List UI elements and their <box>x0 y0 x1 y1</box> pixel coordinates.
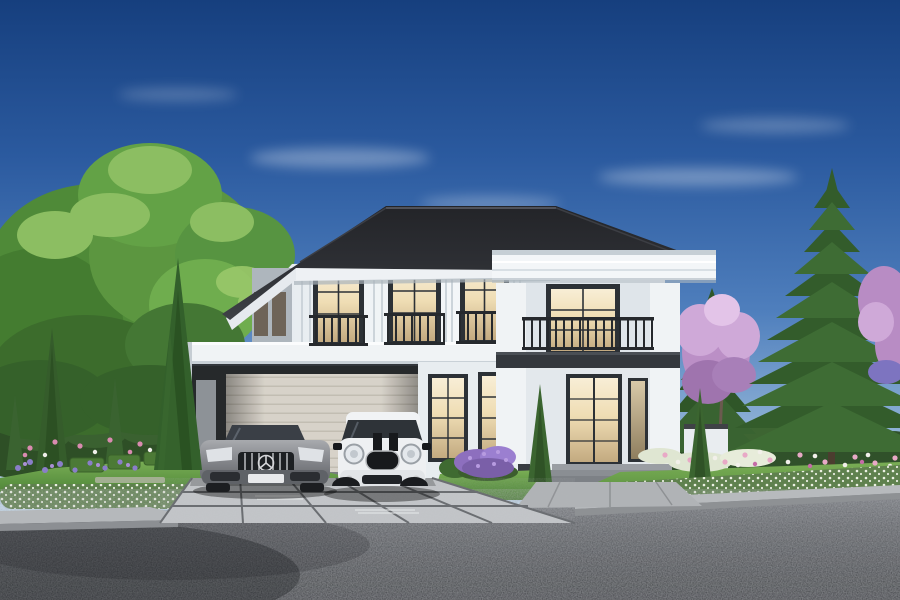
side-light-window <box>628 378 648 462</box>
side-mirror <box>333 443 342 450</box>
side-window <box>272 292 286 336</box>
side-mirror <box>422 443 431 450</box>
french-door <box>566 374 622 464</box>
ground-window <box>428 374 468 462</box>
hood-stripe <box>373 433 382 451</box>
scene-graphics <box>0 0 900 600</box>
hood-stripe <box>389 433 398 451</box>
curb-left <box>0 507 178 531</box>
architectural-rendering <box>0 0 900 600</box>
bay-pilaster <box>496 283 526 357</box>
balcony-railing <box>522 317 654 350</box>
license-plate <box>248 474 284 483</box>
white-flower-hedge-left <box>0 484 198 509</box>
bay-pilaster <box>650 283 680 357</box>
walkway <box>516 482 702 508</box>
